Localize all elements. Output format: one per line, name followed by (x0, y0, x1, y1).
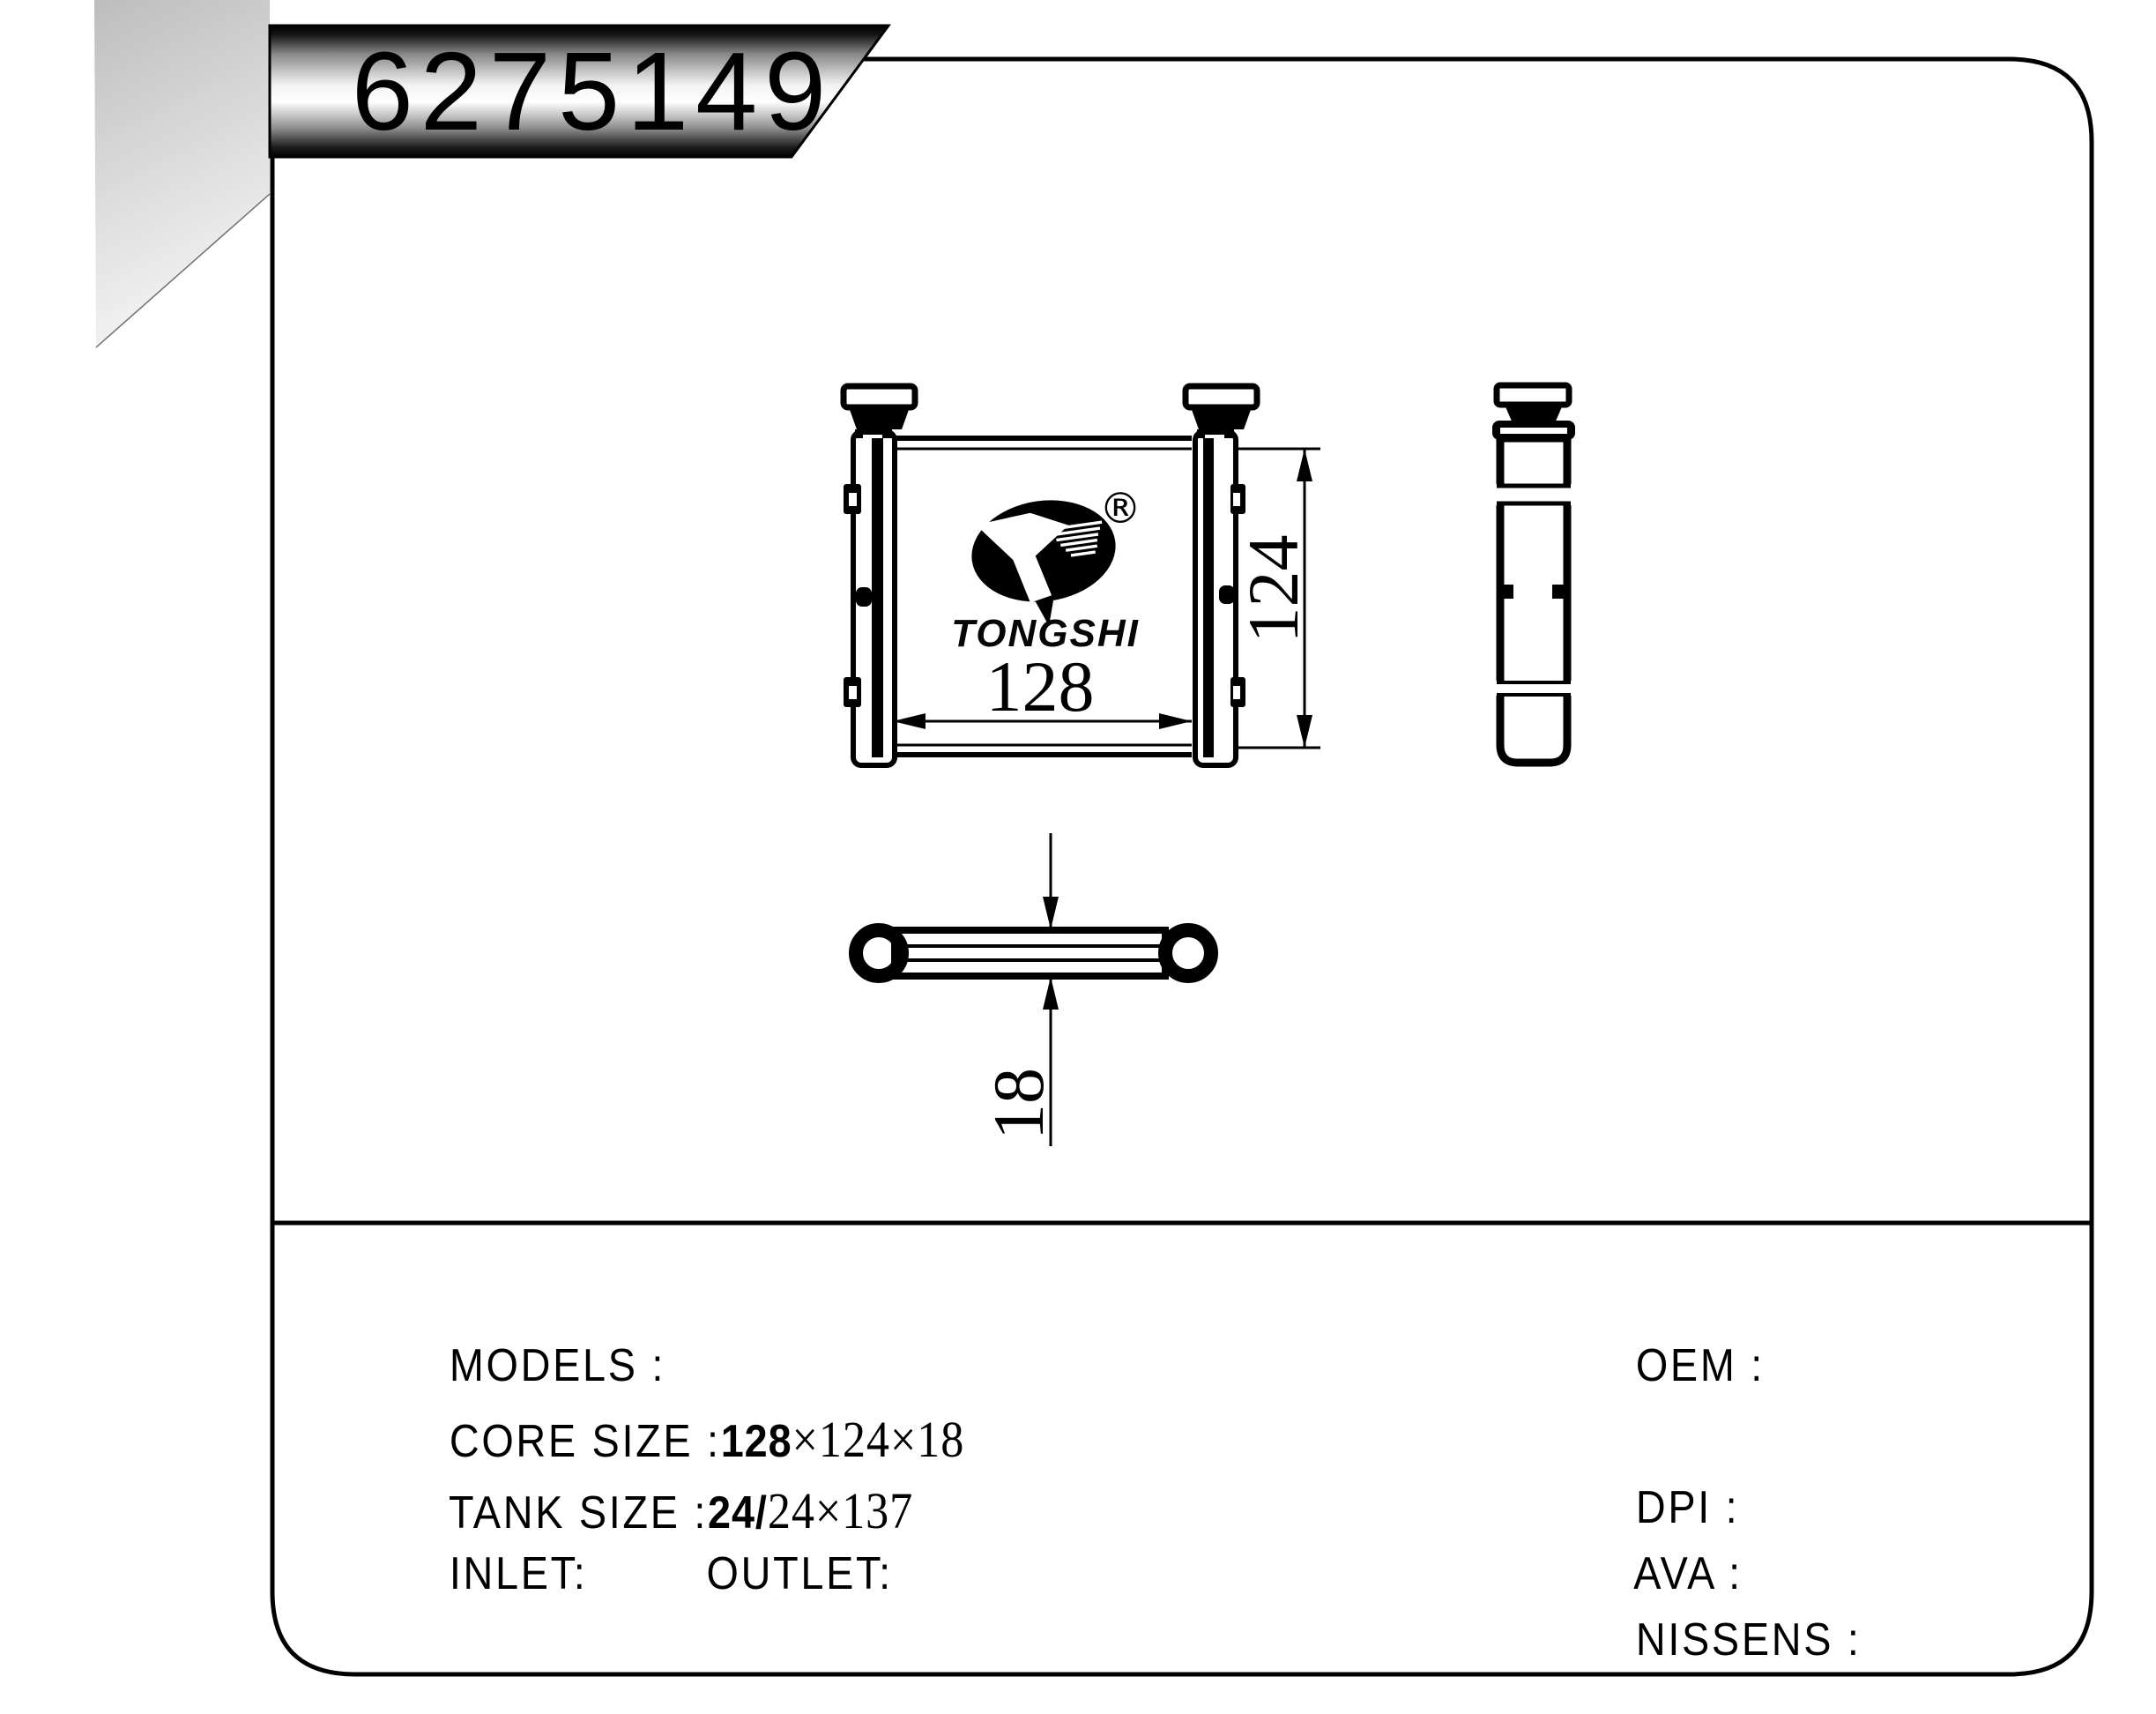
dim-depth: 18 (978, 833, 1059, 1146)
right-tank-clip-top-slot (1233, 493, 1240, 506)
nissens-label: NISSENS : (1636, 1614, 1862, 1666)
left-tank-clip-top-slot (849, 493, 857, 506)
inlet-label: INLET: (450, 1548, 588, 1599)
dim-width: 128 (893, 646, 1192, 729)
right-tank-clip-bottom-slot (1233, 686, 1240, 699)
side-notch-right (1552, 585, 1564, 599)
side-notch-left (1502, 585, 1513, 599)
side-collar-slot (1500, 428, 1567, 434)
left-tank-clip-bottom-slot (849, 686, 857, 699)
dim-width-value: 128 (986, 646, 1095, 727)
dim-depth-value: 18 (978, 1068, 1059, 1140)
bottom-left-ring (856, 930, 902, 976)
technical-drawing: 6275149 (0, 0, 2156, 1714)
bottom-bar (895, 930, 1165, 976)
left-tank-band (872, 438, 883, 757)
spec-row-oem: OEM : (1580, 1291, 1765, 1442)
bottom-right-ring (1165, 930, 1211, 976)
outlet-label: OUTLET: (706, 1548, 892, 1599)
drawing-sheet: 6275149 (0, 0, 2156, 1714)
dim-height-value: 124 (1233, 535, 1313, 644)
right-tank-band (1203, 438, 1214, 757)
spec-row-nissens: NISSENS : (1580, 1565, 1862, 1714)
brand-logo: ® TONGSHI (951, 484, 1141, 655)
side-view (1492, 385, 1575, 763)
spec-row-inlet-outlet: INLET:OUTLET: (394, 1499, 893, 1651)
oem-label: OEM : (1636, 1340, 1765, 1391)
dim-height: 124 (1233, 449, 1320, 748)
part-number: 6275149 (352, 29, 834, 153)
bottom-view (856, 930, 1211, 976)
corner-fold (94, 0, 270, 347)
side-fitting-body (1505, 405, 1563, 423)
registered-icon: ® (1099, 484, 1141, 533)
left-tank-pin (856, 587, 872, 607)
side-fitting-cap (1497, 385, 1569, 405)
